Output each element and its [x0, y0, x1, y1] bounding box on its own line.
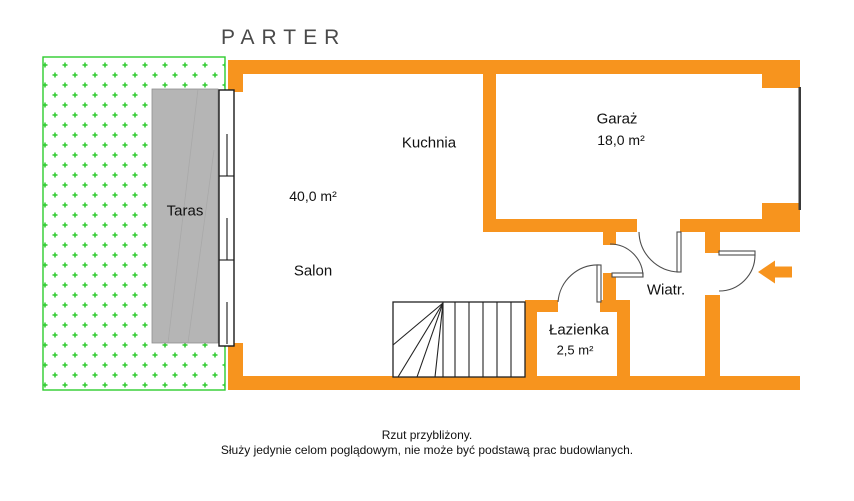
- area-label-lazienka: 2,5 m²: [557, 343, 594, 358]
- door-garage-vestibule: [639, 232, 681, 272]
- entrance-arrow-left-icon: [758, 261, 792, 284]
- room-label-salon: Salon: [294, 263, 332, 280]
- stairs: [393, 302, 525, 377]
- floor-plan-page: PARTER: [0, 0, 854, 501]
- room-label-wiatrolap: Wiatr.: [647, 282, 685, 299]
- room-label-lazienka: Łazienka: [549, 322, 609, 339]
- disclaimer-note: Rzut przybliżony. Służy jedynie celom po…: [0, 428, 854, 458]
- terrace-window: [219, 90, 234, 346]
- disclaimer-line-2: Służy jedynie celom poglądowym, nie może…: [0, 443, 854, 458]
- disclaimer-line-1: Rzut przybliżony.: [0, 428, 854, 443]
- door-entrance: [719, 251, 755, 291]
- door-bathroom: [558, 265, 601, 302]
- garage-door: [799, 87, 802, 210]
- door-kitchen-vestibule: [610, 244, 643, 277]
- interior-walls: [483, 74, 800, 377]
- floor-plan-drawing: [0, 0, 854, 501]
- room-label-taras: Taras: [167, 203, 204, 220]
- area-label-garaz: 18,0 m²: [597, 132, 644, 148]
- room-label-kuchnia: Kuchnia: [402, 135, 456, 152]
- room-label-garaz: Garaż: [597, 111, 638, 128]
- area-label-salon: 40,0 m²: [289, 188, 336, 204]
